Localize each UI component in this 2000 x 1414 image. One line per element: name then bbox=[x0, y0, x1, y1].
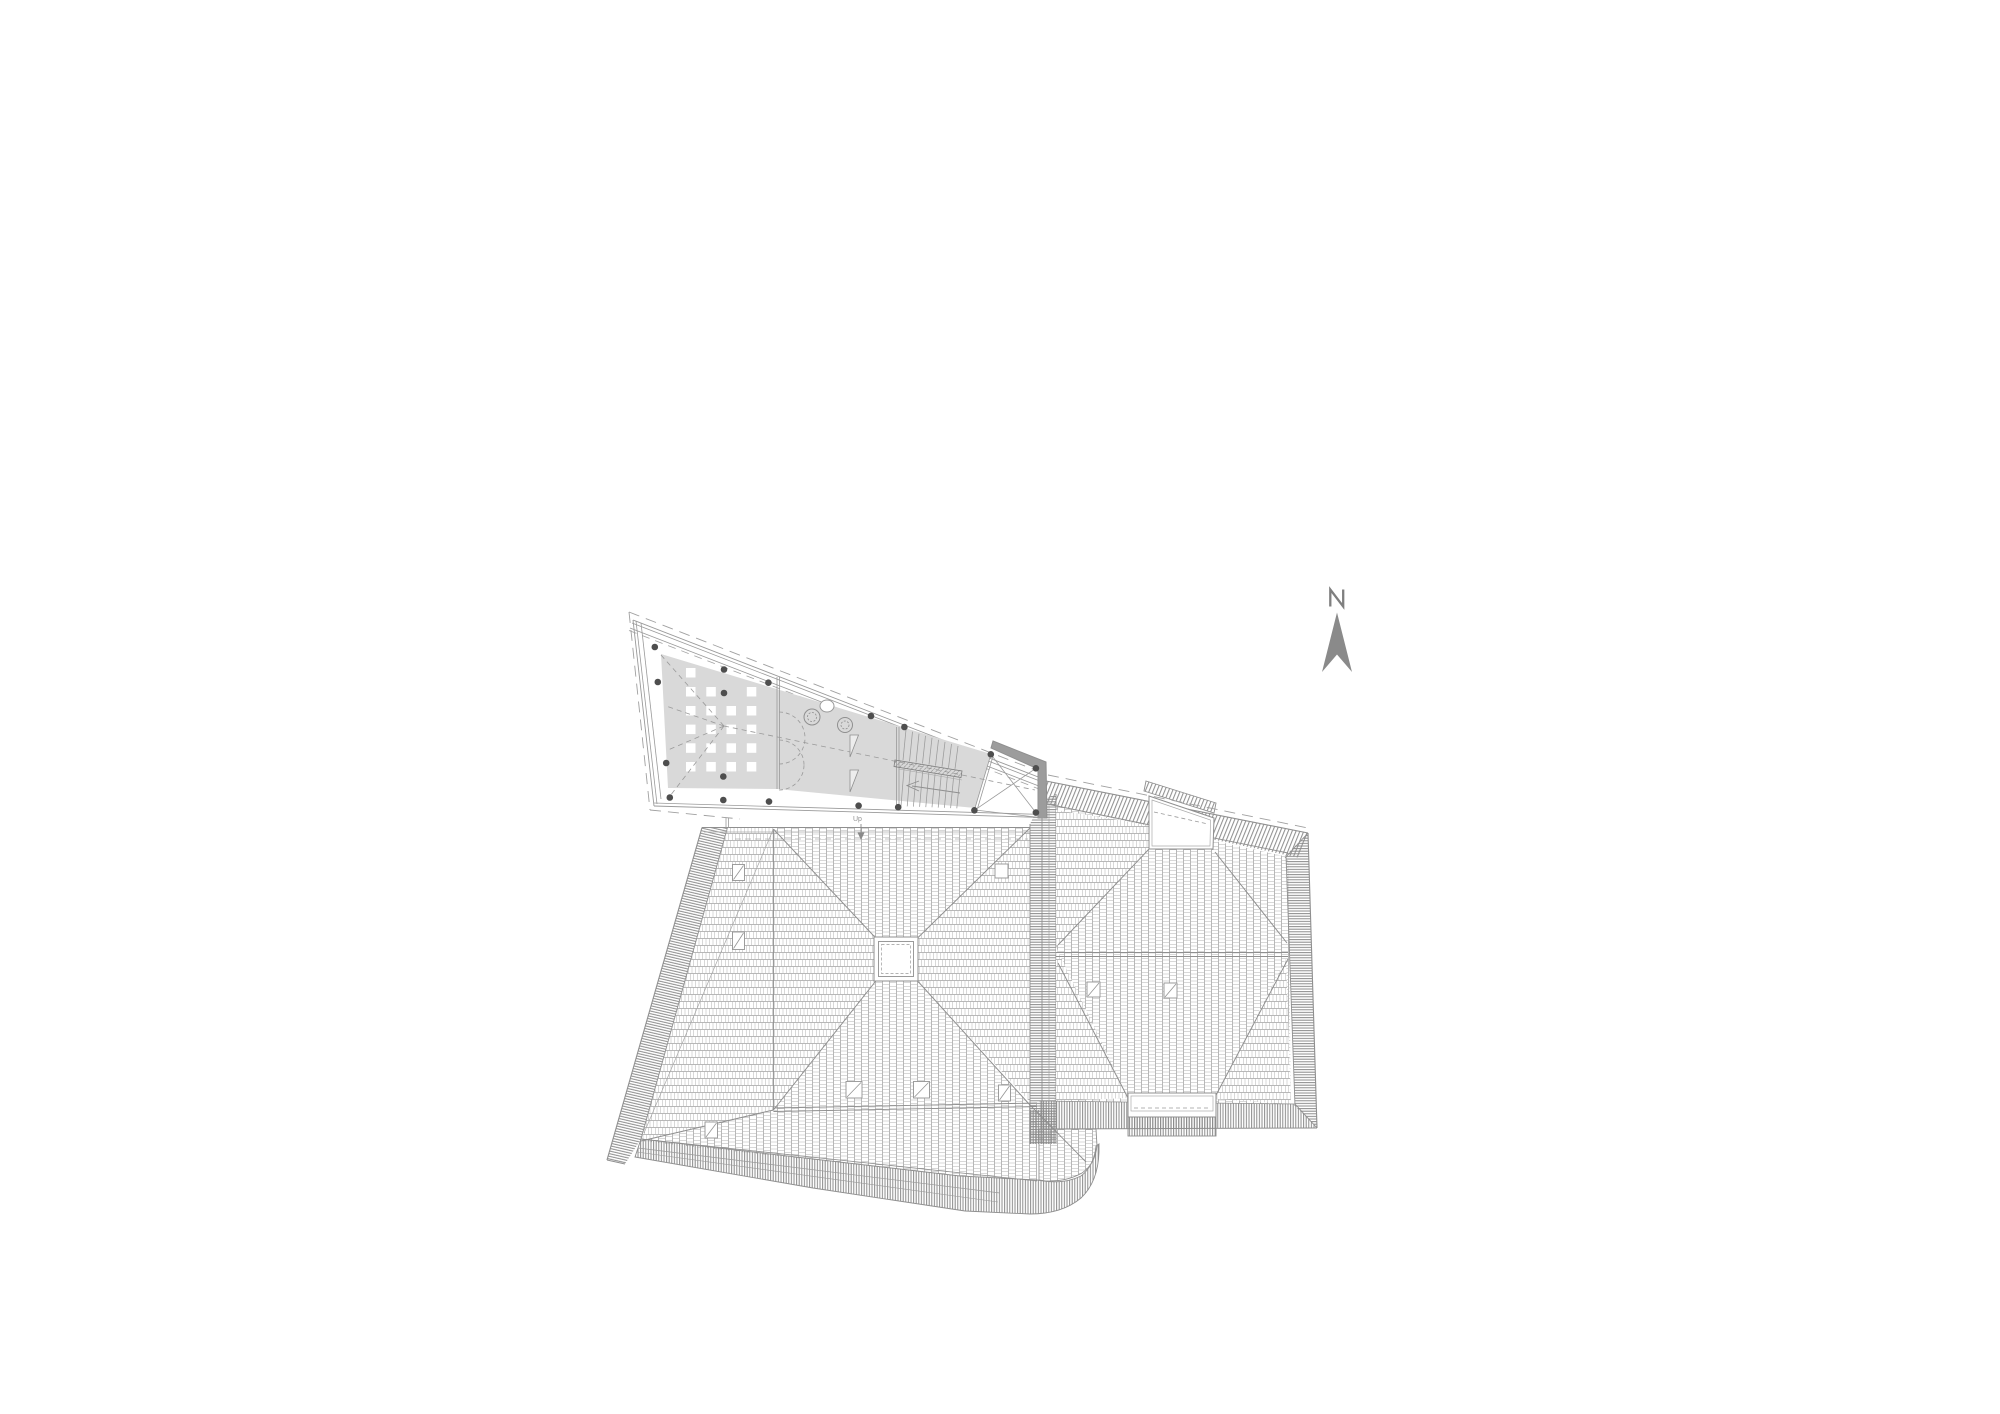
svg-text:Up: Up bbox=[853, 816, 862, 823]
